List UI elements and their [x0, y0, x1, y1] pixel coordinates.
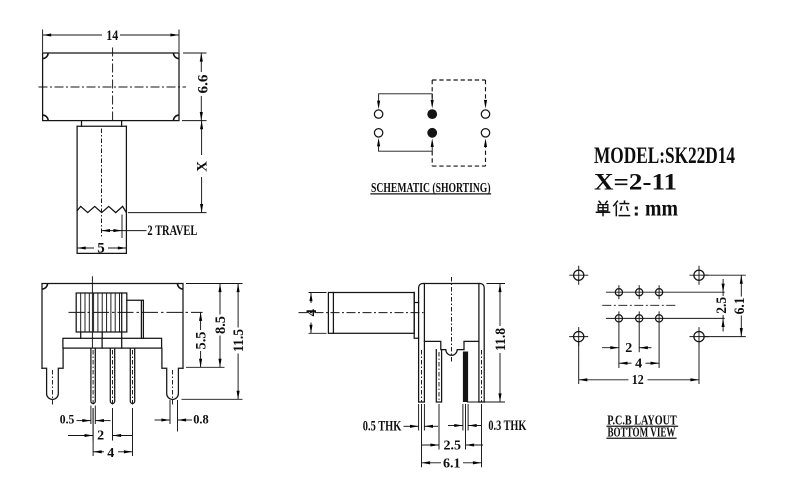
svg-text:0.5 THK: 0.5 THK [363, 419, 402, 435]
svg-text:8.5: 8.5 [213, 316, 229, 334]
svg-text:12: 12 [632, 373, 644, 388]
svg-text:6.1: 6.1 [732, 297, 748, 314]
svg-text:14: 14 [106, 28, 118, 44]
svg-text:11.8: 11.8 [493, 328, 509, 351]
svg-text:2.5: 2.5 [443, 439, 461, 454]
svg-text:6.1: 6.1 [443, 456, 461, 471]
svg-text:mm: mm [645, 196, 678, 221]
svg-text:X: X [195, 161, 211, 172]
svg-text:4: 4 [635, 357, 642, 372]
svg-text:5.5: 5.5 [194, 332, 210, 350]
svg-text:6.6: 6.6 [196, 74, 212, 94]
svg-text:5: 5 [97, 241, 105, 257]
svg-text:2.5: 2.5 [714, 297, 730, 314]
svg-text:X=2-11: X=2-11 [594, 169, 677, 194]
svg-text:4: 4 [107, 446, 114, 461]
svg-text:0.8: 0.8 [193, 413, 209, 427]
svg-text:4: 4 [304, 309, 320, 317]
svg-text:0.5: 0.5 [60, 413, 75, 427]
svg-text:MODEL:SK22D14: MODEL:SK22D14 [594, 143, 735, 168]
svg-text:2: 2 [625, 341, 632, 356]
svg-text:2 TRAVEL: 2 TRAVEL [147, 223, 197, 239]
svg-text:2: 2 [97, 429, 104, 444]
svg-text:0.3 THK: 0.3 THK [488, 418, 526, 434]
svg-text:11.5: 11.5 [231, 329, 247, 352]
